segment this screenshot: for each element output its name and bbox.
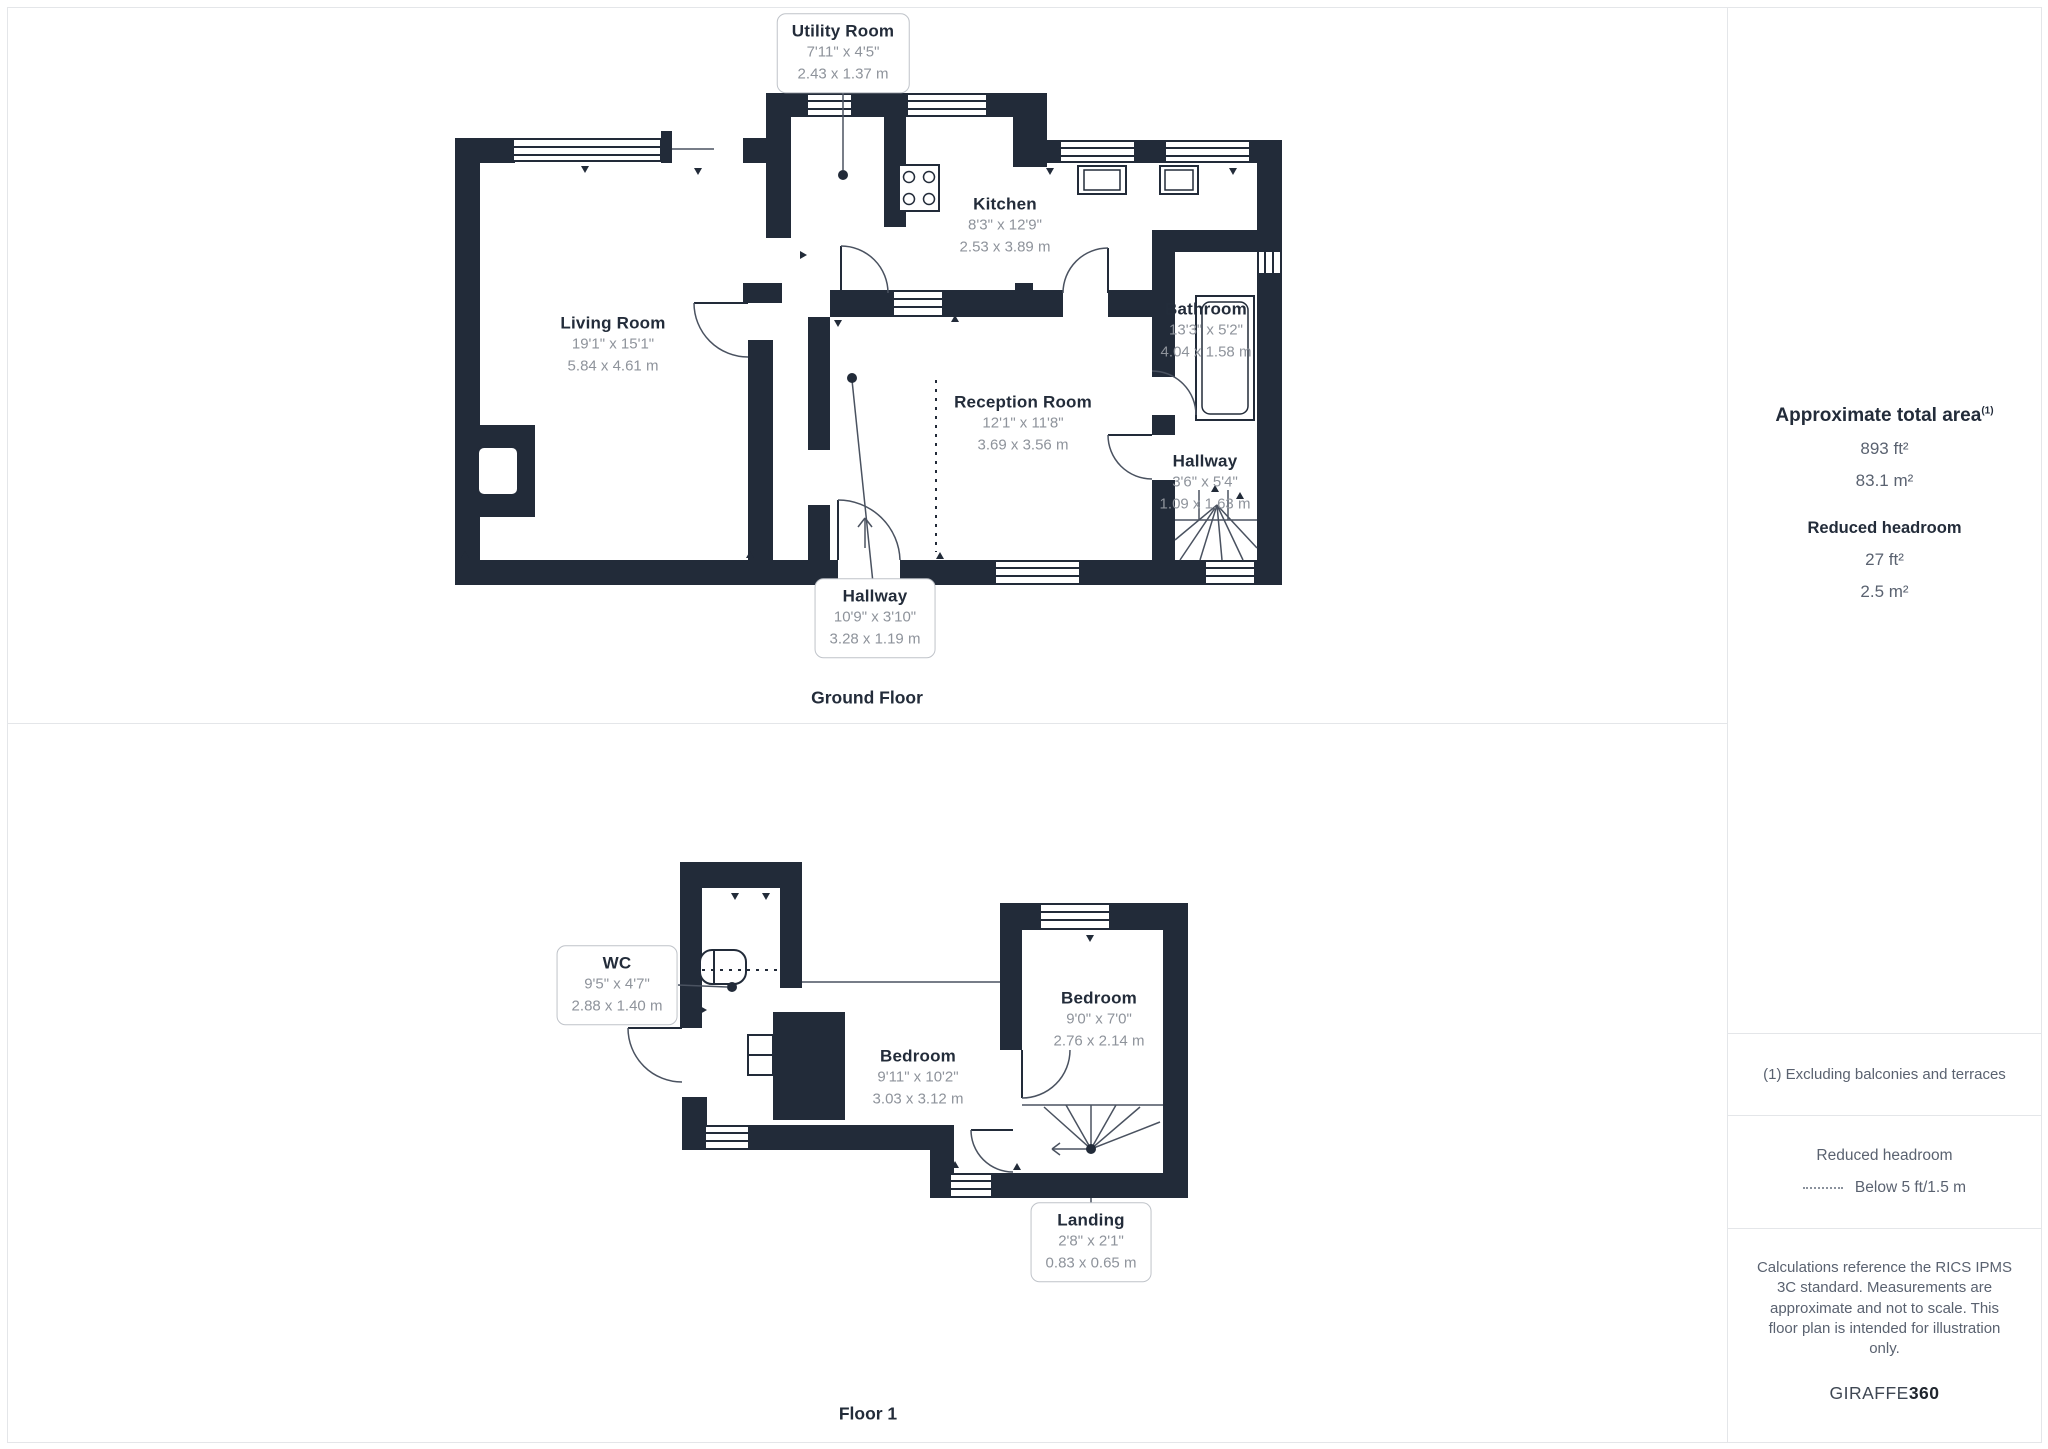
bathroom-dim-metric: 4.04 x 1.58 m xyxy=(1161,341,1252,363)
room-label-reception: Reception Room 12'1" x 11'8" 3.69 x 3.56… xyxy=(954,392,1092,456)
hallway-main-name: Hallway xyxy=(830,586,921,606)
bedroom-small-dim-imperial: 9'0" x 7'0" xyxy=(1054,1008,1145,1030)
utility-dim-metric: 2.43 x 1.37 m xyxy=(792,63,895,85)
hallway-main-dim-metric: 3.28 x 1.19 m xyxy=(830,628,921,650)
living-dim-imperial: 19'1" x 15'1" xyxy=(560,333,665,355)
footnote-text: (1) Excluding balconies and terraces xyxy=(1763,1066,2006,1083)
room-label-bathroom: Bathroom 13'3" x 5'2" 4.04 x 1.58 m xyxy=(1161,299,1252,363)
bedroom-small-dim-metric: 2.76 x 2.14 m xyxy=(1054,1030,1145,1052)
bathroom-dim-imperial: 13'3" x 5'2" xyxy=(1161,319,1252,341)
wc-name: WC xyxy=(572,953,663,973)
landing-dim-imperial: 2'8" x 2'1" xyxy=(1046,1230,1137,1252)
landing-name: Landing xyxy=(1046,1210,1137,1230)
room-label-bedroom-main: Bedroom 9'11" x 10'2" 3.03 x 3.12 m xyxy=(873,1046,964,1110)
bathroom-name: Bathroom xyxy=(1161,299,1252,319)
landing-dim-metric: 0.83 x 0.65 m xyxy=(1046,1252,1137,1274)
reception-dim-imperial: 12'1" x 11'8" xyxy=(954,412,1092,434)
bedroom-main-name: Bedroom xyxy=(873,1046,964,1066)
utility-name: Utility Room xyxy=(792,21,895,41)
hallway-side-name: Hallway xyxy=(1160,451,1251,471)
room-label-bedroom-small: Bedroom 9'0" x 7'0" 2.76 x 2.14 m xyxy=(1054,988,1145,1052)
disclaimer-text: Calculations reference the RICS IPMS 3C … xyxy=(1754,1258,2016,1359)
room-label-hallway-side: Hallway 3'6" x 5'4" 1.09 x 1.63 m xyxy=(1160,451,1251,515)
kitchen-dim-imperial: 8'3" x 12'9" xyxy=(960,214,1051,236)
kitchen-name: Kitchen xyxy=(960,194,1051,214)
sidebar-area-summary: Approximate total area(1) 893 ft² 83.1 m… xyxy=(1728,405,2041,602)
living-dim-metric: 5.84 x 4.61 m xyxy=(560,355,665,377)
reduced-headroom-m: 2.5 m² xyxy=(1728,582,2041,602)
dotted-line-swatch xyxy=(1803,1187,1843,1189)
hallway-side-dim-imperial: 3'6" x 5'4" xyxy=(1160,471,1251,493)
room-label-utility: Utility Room 7'11" x 4'5" 2.43 x 1.37 m xyxy=(777,13,910,93)
sidebar-footnote: (1) Excluding balconies and terraces xyxy=(1728,1033,2041,1115)
legend-label: Below 5 ft/1.5 m xyxy=(1855,1179,1966,1197)
legend-heading: Reduced headroom xyxy=(1816,1147,1952,1165)
room-label-hallway-main: Hallway 10'9" x 3'10" 3.28 x 1.19 m xyxy=(815,578,936,658)
bedroom-main-dim-metric: 3.03 x 3.12 m xyxy=(873,1088,964,1110)
footnote-ref: (1) xyxy=(1981,406,1993,417)
reduced-headroom-ft: 27 ft² xyxy=(1728,550,2041,570)
hallway-side-dim-metric: 1.09 x 1.63 m xyxy=(1160,493,1251,515)
room-label-landing: Landing 2'8" x 2'1" 0.83 x 0.65 m xyxy=(1031,1202,1152,1282)
bedroom-small-name: Bedroom xyxy=(1054,988,1145,1008)
room-label-wc: WC 9'5" x 4'7" 2.88 x 1.40 m xyxy=(557,945,678,1025)
legend-row: Below 5 ft/1.5 m xyxy=(1803,1179,1966,1197)
living-name: Living Room xyxy=(560,313,665,333)
room-label-kitchen: Kitchen 8'3" x 12'9" 2.53 x 3.89 m xyxy=(960,194,1051,258)
total-area-ft: 893 ft² xyxy=(1728,439,2041,459)
wc-dim-imperial: 9'5" x 4'7" xyxy=(572,973,663,995)
hallway-main-dim-imperial: 10'9" x 3'10" xyxy=(830,606,921,628)
sidebar-legend: Reduced headroom Below 5 ft/1.5 m xyxy=(1728,1115,2041,1228)
reduced-headroom-heading: Reduced headroom xyxy=(1728,519,2041,538)
room-label-living: Living Room 19'1" x 15'1" 5.84 x 4.61 m xyxy=(560,313,665,377)
total-area-m: 83.1 m² xyxy=(1728,471,2041,491)
utility-dim-imperial: 7'11" x 4'5" xyxy=(792,41,895,63)
reception-dim-metric: 3.69 x 3.56 m xyxy=(954,434,1092,456)
floorplan-page: { "ground_floor": { "title": "Ground Flo… xyxy=(0,0,2048,1449)
ground-floor-title: Ground Floor xyxy=(811,688,923,709)
sidebar-disclaimer: Calculations reference the RICS IPMS 3C … xyxy=(1728,1228,2041,1442)
wc-dim-metric: 2.88 x 1.40 m xyxy=(572,995,663,1017)
bedroom-main-dim-imperial: 9'11" x 10'2" xyxy=(873,1066,964,1088)
kitchen-dim-metric: 2.53 x 3.89 m xyxy=(960,236,1051,258)
reception-name: Reception Room xyxy=(954,392,1092,412)
total-area-heading: Approximate total area(1) xyxy=(1728,405,2041,427)
floor-1-title: Floor 1 xyxy=(839,1404,897,1425)
giraffe360-logo: GIRAFFE360 xyxy=(1728,1383,2041,1404)
